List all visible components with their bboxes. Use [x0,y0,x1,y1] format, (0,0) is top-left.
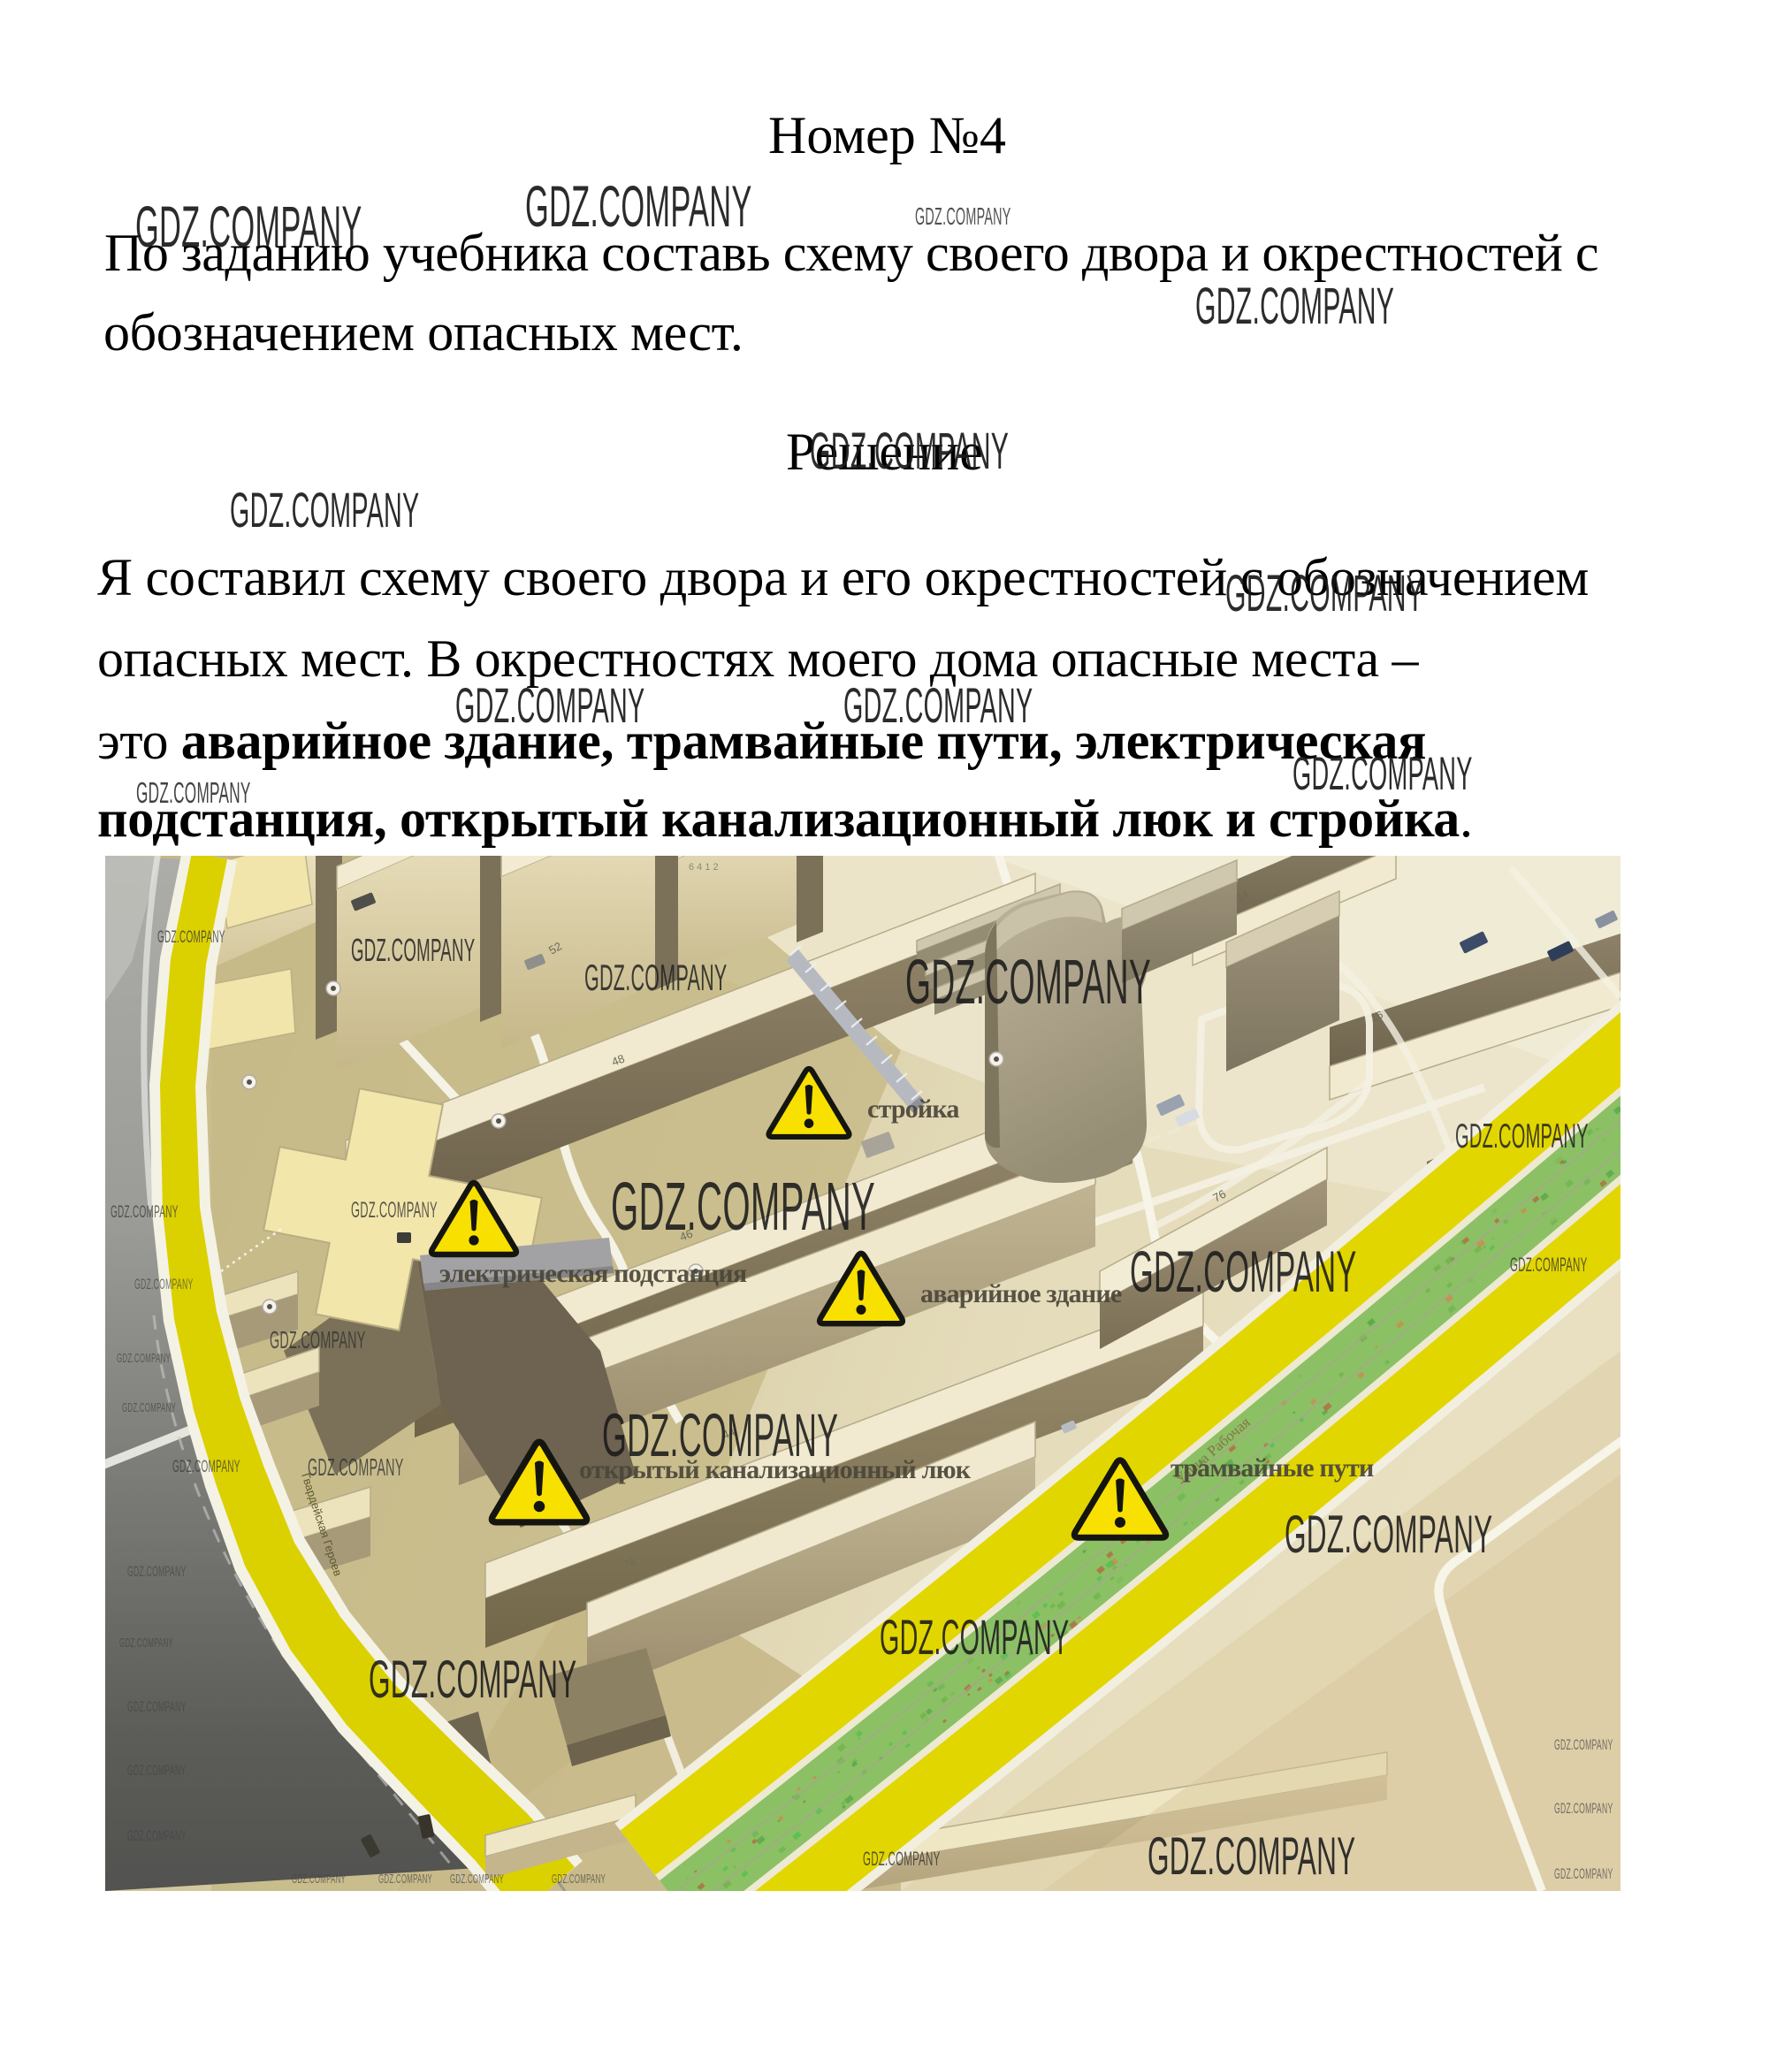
svg-text:электрическая подстанция: электрическая подстанция [439,1259,747,1288]
svg-text:стройка: стройка [867,1094,959,1124]
svg-text:трамвайные пути: трамвайные пути [1171,1453,1374,1483]
svg-text:6 4 1 2: 6 4 1 2 [689,862,719,873]
svg-text:аварийное здание: аварийное здание [920,1279,1122,1308]
